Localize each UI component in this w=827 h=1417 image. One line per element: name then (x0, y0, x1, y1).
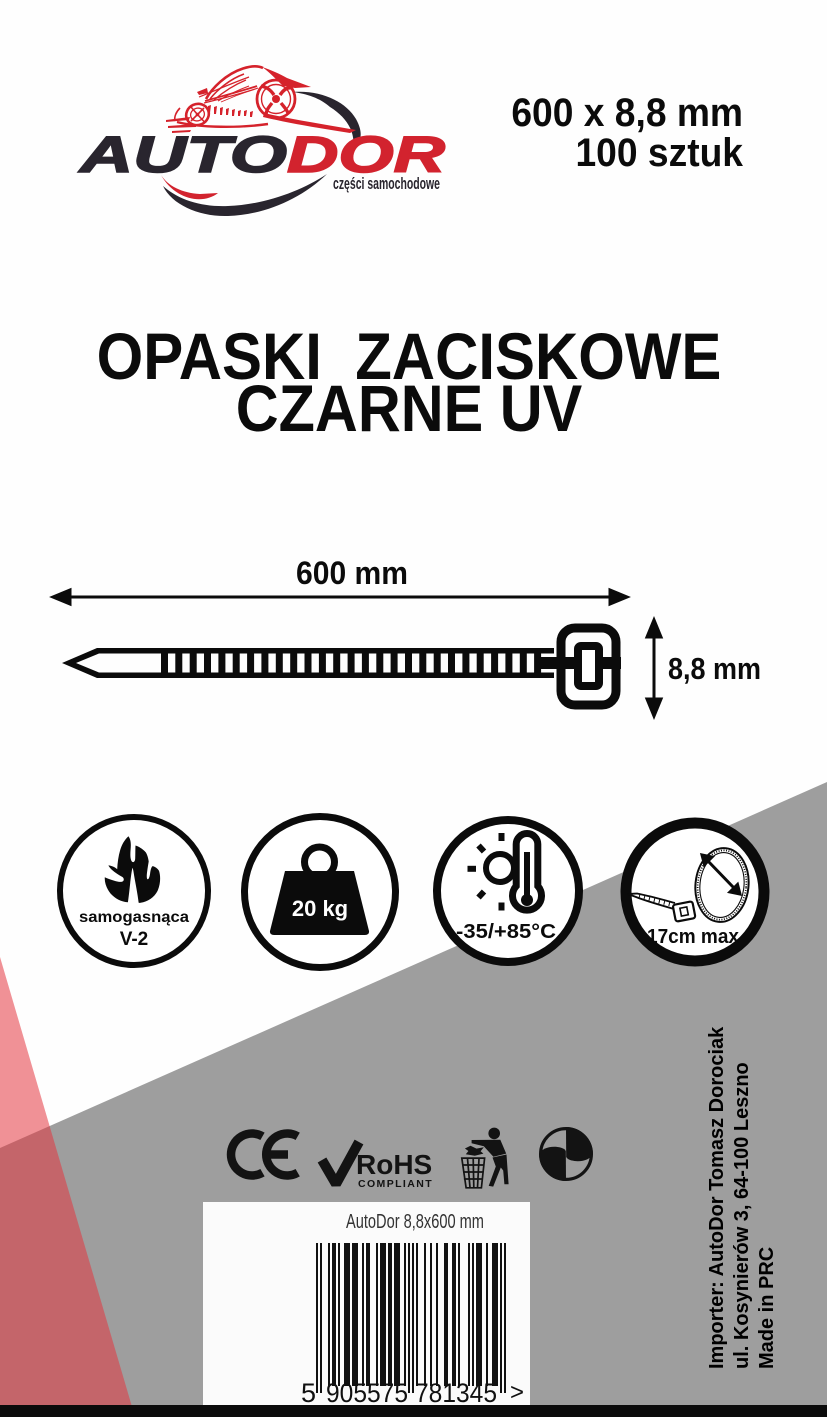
svg-text:>: > (510, 1379, 524, 1406)
svg-text:17cm max: 17cm max (647, 926, 739, 948)
svg-text:5: 5 (301, 1378, 316, 1408)
svg-text:-35/+85°C: -35/+85°C (456, 921, 556, 943)
svg-text:600 mm: 600 mm (296, 555, 408, 591)
svg-text:części samochodowe: części samochodowe (333, 174, 440, 193)
svg-text:samogasnąca: samogasnąca (79, 909, 189, 926)
svg-text:COMPLIANT: COMPLIANT (358, 1178, 433, 1190)
svg-text:20 kg: 20 kg (292, 896, 348, 921)
svg-text:V-2: V-2 (120, 929, 149, 950)
svg-text:8,8 mm: 8,8 mm (668, 651, 761, 686)
svg-text:RoHS: RoHS (356, 1149, 432, 1180)
svg-text:905575: 905575 (326, 1378, 408, 1408)
svg-text:AUTO: AUTO (77, 126, 287, 183)
svg-text:781345: 781345 (415, 1378, 497, 1408)
